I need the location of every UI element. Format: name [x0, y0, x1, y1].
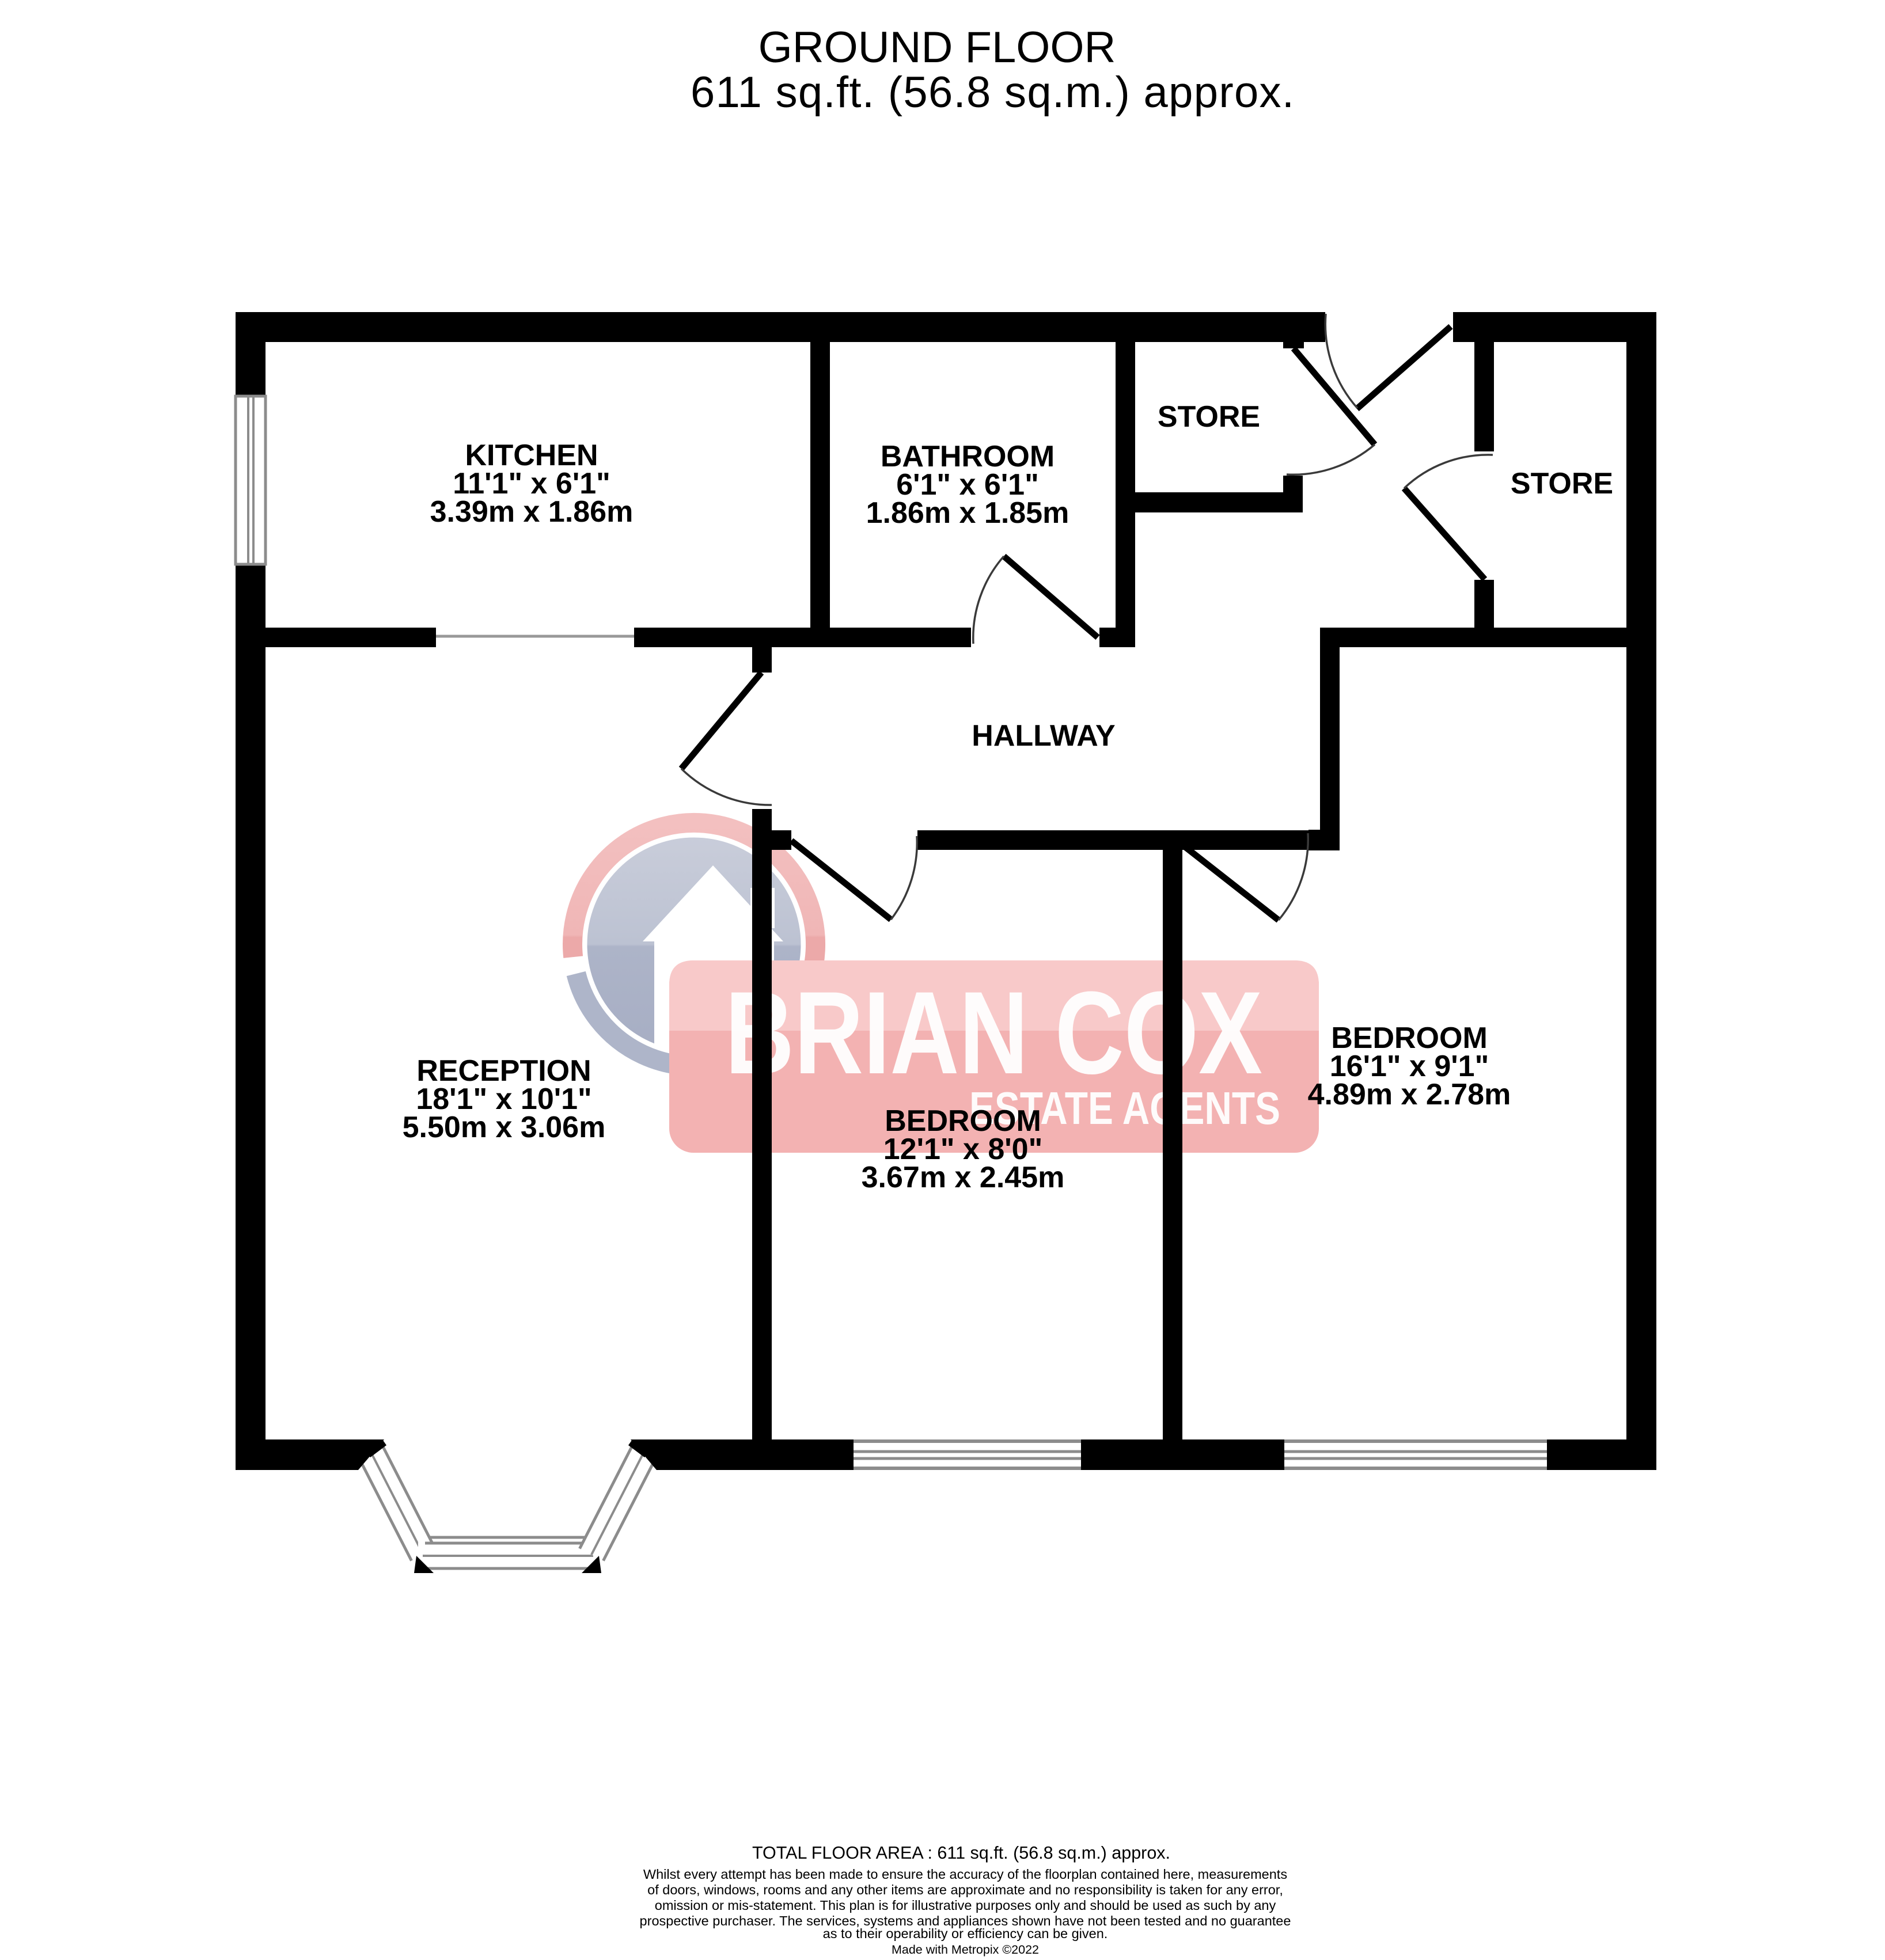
svg-text:4.89m x 2.78m: 4.89m x 2.78m	[1308, 1078, 1511, 1111]
svg-text:GROUND FLOOR: GROUND FLOOR	[758, 23, 1116, 72]
svg-text:Whilst every attempt has been: Whilst every attempt has been made to en…	[643, 1867, 1287, 1882]
svg-text:as to their operability or eff: as to their operability or efficiency ca…	[823, 1926, 1108, 1941]
svg-text:611 sq.ft. (56.8 sq.m.) approx: 611 sq.ft. (56.8 sq.m.) approx.	[691, 68, 1294, 117]
svg-text:STORE: STORE	[1158, 400, 1260, 434]
svg-text:3.67m x 2.45m: 3.67m x 2.45m	[862, 1161, 1065, 1194]
svg-text:STORE: STORE	[1511, 467, 1613, 500]
svg-text:of doors, windows, rooms and a: of doors, windows, rooms and any other i…	[647, 1882, 1283, 1897]
svg-text:HALLWAY: HALLWAY	[972, 719, 1115, 753]
svg-text:3.39m x 1.86m: 3.39m x 1.86m	[430, 495, 634, 529]
svg-text:5.50m x 3.06m: 5.50m x 3.06m	[403, 1111, 606, 1144]
svg-text:omission or mis-statement. Thi: omission or mis-statement. This plan is …	[655, 1898, 1276, 1913]
svg-text:TOTAL FLOOR AREA : 611 sq.ft.: TOTAL FLOOR AREA : 611 sq.ft. (56.8 sq.m…	[752, 1843, 1170, 1863]
svg-text:Made with Metropix ©2022: Made with Metropix ©2022	[892, 1943, 1039, 1957]
svg-text:1.86m x 1.85m: 1.86m x 1.85m	[866, 496, 1069, 530]
